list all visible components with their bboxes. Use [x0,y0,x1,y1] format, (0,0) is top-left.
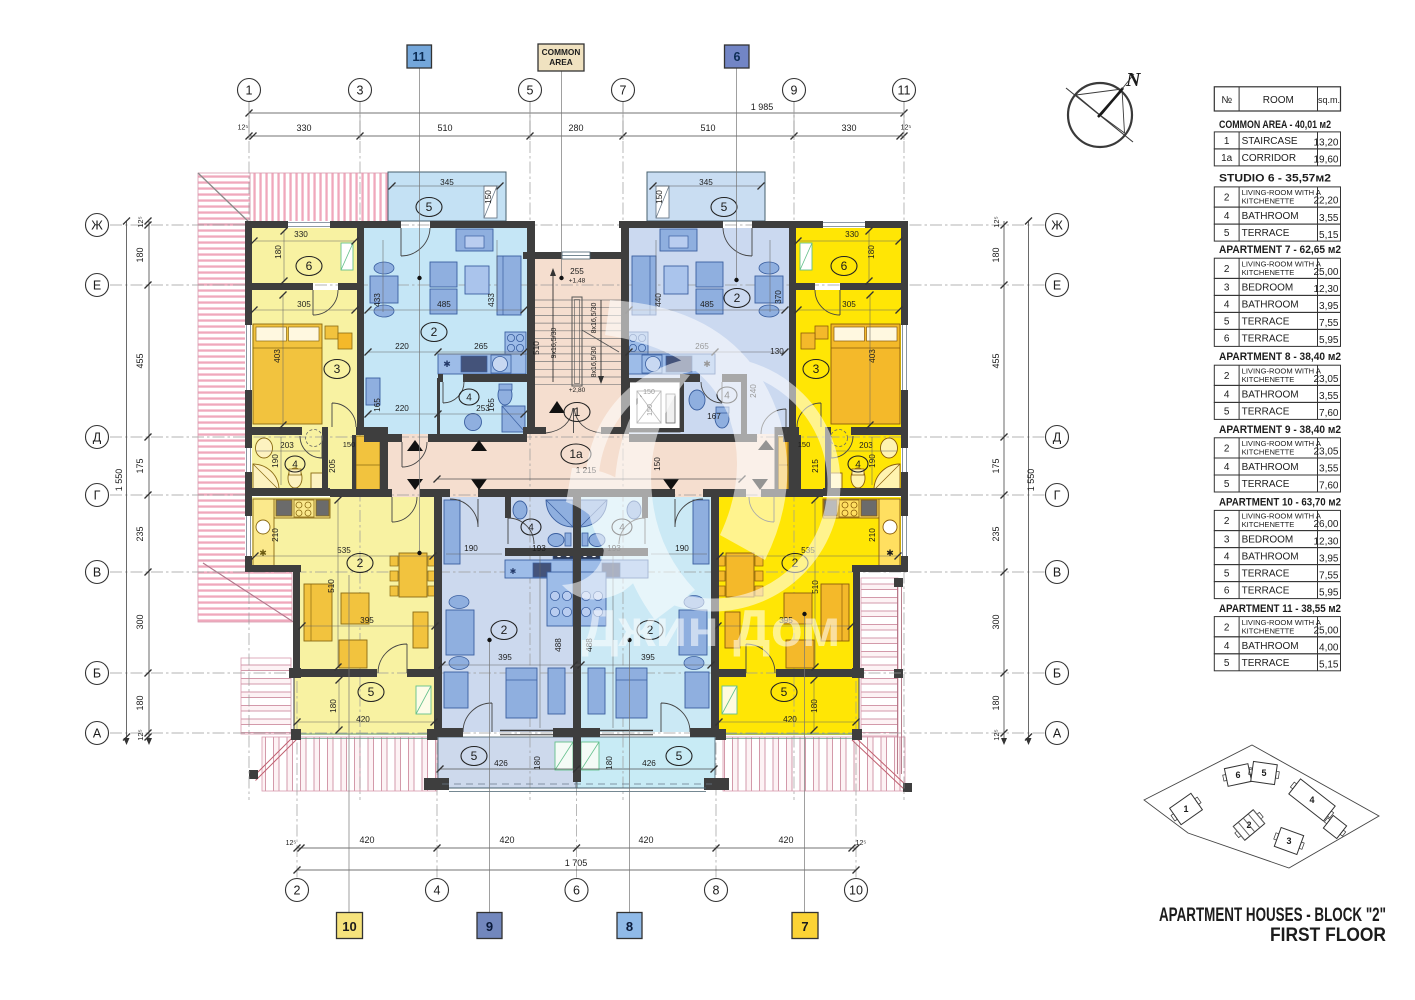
svg-text:535: 535 [337,546,351,555]
svg-text:1: 1 [1183,804,1188,814]
svg-text:4: 4 [855,460,861,471]
svg-text:190: 190 [868,454,877,468]
svg-text:APARTMENT 10 - 63,70 м2: APARTMENT 10 - 63,70 м2 [1219,497,1341,509]
svg-text:Г: Г [1054,489,1061,503]
svg-text:5: 5 [368,685,375,699]
svg-text:2: 2 [501,623,508,637]
svg-text:11: 11 [412,50,425,64]
svg-text:150: 150 [798,440,811,449]
svg-text:BATHROOM: BATHROOM [1242,641,1299,652]
svg-text:12⁵: 12⁵ [901,125,912,132]
svg-text:KITCHENETTE: KITCHENETTE [1242,626,1295,635]
svg-text:510: 510 [700,123,715,133]
svg-text:440: 440 [654,293,663,307]
svg-text:255: 255 [570,267,584,276]
svg-text:12⁵: 12⁵ [856,840,867,847]
svg-text:420: 420 [356,715,370,724]
svg-text:330: 330 [296,123,311,133]
svg-text:5: 5 [1224,228,1230,239]
svg-text:4: 4 [1224,552,1230,563]
svg-text:215: 215 [811,459,820,473]
svg-text:1 550: 1 550 [1026,469,1036,492]
svg-text:5,15: 5,15 [1319,230,1339,241]
svg-text:А: А [1053,727,1062,741]
svg-text:APARTMENT HOUSES - BLOCK "2": APARTMENT HOUSES - BLOCK "2" [1159,905,1386,926]
svg-text:N: N [1125,69,1142,91]
svg-text:5: 5 [676,749,683,763]
svg-text:✱: ✱ [510,567,517,576]
svg-text:220: 220 [395,404,409,413]
svg-text:7: 7 [801,919,808,934]
svg-text:2: 2 [1224,264,1230,275]
svg-text:12⁵: 12⁵ [136,729,145,740]
svg-text:485: 485 [437,300,451,309]
svg-text:150: 150 [343,440,356,449]
svg-text:7,55: 7,55 [1319,318,1339,329]
svg-text:12⁵: 12⁵ [136,216,145,227]
svg-text:+2,80: +2,80 [569,387,586,394]
svg-text:235: 235 [991,526,1001,541]
svg-text:5,95: 5,95 [1319,587,1339,598]
svg-text:2: 2 [1224,516,1230,527]
svg-text:AREA: AREA [549,57,573,67]
svg-text:COMMON AREA - 40,01 м2: COMMON AREA - 40,01 м2 [1219,119,1331,131]
svg-text:175: 175 [991,458,1001,473]
svg-text:165: 165 [373,398,382,412]
svg-text:12,30: 12,30 [1313,284,1338,295]
svg-text:420: 420 [783,715,797,724]
svg-text:2: 2 [1224,371,1230,382]
svg-text:✱: ✱ [443,359,451,369]
svg-text:BATHROOM: BATHROOM [1242,211,1299,222]
svg-text:FIRST FLOOR: FIRST FLOOR [1270,925,1386,946]
svg-text:23,05: 23,05 [1313,447,1338,458]
svg-text:BEDROOM: BEDROOM [1242,283,1294,294]
svg-text:3: 3 [813,362,820,376]
svg-text:4: 4 [1224,211,1230,222]
svg-text:1 550: 1 550 [114,469,124,492]
svg-text:167: 167 [707,412,721,421]
svg-text:STUDIO 6 - 35,57м2: STUDIO 6 - 35,57м2 [1219,172,1331,184]
svg-text:3: 3 [1224,535,1230,546]
svg-text:6: 6 [306,259,313,273]
svg-text:265: 265 [474,342,488,351]
svg-text:TERRACE: TERRACE [1242,334,1290,345]
svg-text:TERRACE: TERRACE [1242,658,1290,669]
svg-text:4: 4 [1224,300,1230,311]
svg-text:330: 330 [841,123,856,133]
svg-text:Е: Е [1053,279,1061,293]
svg-text:165: 165 [487,398,496,412]
svg-text:4: 4 [1224,641,1230,652]
svg-text:А: А [93,727,102,741]
svg-text:485: 485 [700,300,714,309]
svg-text:TERRACE: TERRACE [1242,479,1290,490]
svg-text:5: 5 [1224,658,1230,669]
svg-text:10: 10 [342,919,356,934]
svg-text:6: 6 [1224,334,1230,345]
svg-text:5: 5 [1224,479,1230,490]
svg-text:5: 5 [527,84,534,98]
svg-text:4: 4 [1224,390,1230,401]
svg-text:KITCHENETTE: KITCHENETTE [1242,375,1295,384]
svg-text:3: 3 [334,362,341,376]
svg-text:345: 345 [440,178,454,187]
svg-text:190: 190 [271,454,280,468]
svg-text:5: 5 [1224,407,1230,418]
svg-text:KITCHENETTE: KITCHENETTE [1242,197,1295,206]
svg-text:210: 210 [271,528,280,542]
svg-text:190: 190 [464,544,478,553]
svg-text:150: 150 [653,457,662,471]
svg-text:205: 205 [328,459,337,473]
svg-text:395: 395 [360,616,374,625]
svg-text:3,55: 3,55 [1319,464,1339,475]
svg-text:433: 433 [487,293,496,307]
svg-text:APARTMENT 8 - 38,40 м2: APARTMENT 8 - 38,40 м2 [1219,351,1341,363]
svg-text:5: 5 [1224,317,1230,328]
svg-text:4: 4 [466,393,472,404]
svg-text:190: 190 [675,544,689,553]
svg-text:TERRACE: TERRACE [1242,569,1290,580]
svg-text:180: 180 [135,247,145,262]
svg-text:sq.m.: sq.m. [1318,95,1340,105]
svg-text:1a: 1a [569,447,583,461]
svg-text:150: 150 [655,190,664,204]
svg-text:KITCHENETTE: KITCHENETTE [1242,268,1295,277]
svg-text:12⁵: 12⁵ [992,216,1001,227]
svg-text:KITCHENETTE: KITCHENETTE [1242,448,1295,457]
svg-text:2: 2 [294,884,301,898]
svg-text:9: 9 [791,84,798,98]
svg-text:25,00: 25,00 [1313,625,1338,636]
svg-text:9: 9 [486,919,493,934]
svg-text:8: 8 [626,919,633,934]
svg-text:180: 180 [605,756,614,770]
svg-text:BATHROOM: BATHROOM [1242,300,1299,311]
svg-text:7: 7 [620,84,627,98]
svg-text:5: 5 [781,685,788,699]
svg-text:210: 210 [868,528,877,542]
svg-text:175: 175 [135,458,145,473]
svg-text:BEDROOM: BEDROOM [1242,535,1294,546]
svg-text:4,00: 4,00 [1319,643,1339,654]
svg-text:2: 2 [1224,622,1230,633]
svg-text:510: 510 [437,123,452,133]
svg-text:455: 455 [991,353,1001,368]
svg-text:CORRIDOR: CORRIDOR [1242,153,1296,164]
svg-text:19,60: 19,60 [1313,155,1338,166]
svg-text:В: В [93,566,101,580]
svg-text:180: 180 [135,695,145,710]
svg-text:10: 10 [849,884,863,898]
svg-text:3,95: 3,95 [1319,553,1339,564]
svg-text:3,55: 3,55 [1319,391,1339,402]
svg-text:Б: Б [93,667,101,681]
svg-text:3: 3 [1224,283,1230,294]
svg-text:12⁵: 12⁵ [992,729,1001,740]
svg-text:510: 510 [811,580,820,594]
svg-text:3,55: 3,55 [1319,213,1339,224]
svg-text:305: 305 [297,300,311,309]
svg-text:4: 4 [434,884,441,898]
svg-text:150: 150 [484,190,493,204]
svg-text:180: 180 [991,695,1001,710]
svg-text:6: 6 [841,259,848,273]
svg-text:426: 426 [642,759,656,768]
svg-text:5: 5 [471,749,478,763]
svg-text:5: 5 [721,200,728,214]
svg-text:5: 5 [1224,569,1230,580]
svg-text:6: 6 [1224,586,1230,597]
svg-text:1a: 1a [1221,153,1233,164]
svg-text:BATHROOM: BATHROOM [1242,390,1299,401]
svg-text:Д: Д [1053,431,1062,445]
svg-text:420: 420 [778,835,793,845]
svg-text:193: 193 [532,544,546,553]
svg-text:510: 510 [532,341,541,355]
svg-text:В: В [1053,566,1061,580]
svg-text:2: 2 [357,556,364,570]
svg-text:180: 180 [810,699,819,713]
svg-text:8: 8 [713,884,720,898]
svg-text:TERRACE: TERRACE [1242,407,1290,418]
svg-text:1: 1 [574,405,581,419]
svg-text:KITCHENETTE: KITCHENETTE [1242,520,1295,529]
svg-text:3: 3 [1286,836,1291,846]
svg-text:5,15: 5,15 [1319,660,1339,671]
svg-text:APARTMENT 11 - 38,55 м2: APARTMENT 11 - 38,55 м2 [1219,603,1341,615]
svg-text:Ж: Ж [1051,219,1063,233]
svg-text:395: 395 [498,653,512,662]
svg-text:26,00: 26,00 [1313,519,1338,530]
svg-text:12,30: 12,30 [1313,536,1338,547]
svg-text:370: 370 [774,290,783,304]
svg-text:1 705: 1 705 [565,858,588,868]
svg-text:300: 300 [991,614,1001,629]
svg-text:6: 6 [734,50,741,64]
svg-text:420: 420 [499,835,514,845]
svg-text:330: 330 [294,230,308,239]
svg-text:12⁵: 12⁵ [286,840,297,847]
svg-text:2: 2 [1224,193,1230,204]
svg-text:180: 180 [867,245,876,259]
svg-text:180: 180 [329,699,338,713]
svg-text:22,20: 22,20 [1313,196,1338,207]
svg-text:BATHROOM: BATHROOM [1242,462,1299,473]
svg-text:330: 330 [845,230,859,239]
svg-text:COMMON: COMMON [542,47,581,57]
svg-text:403: 403 [273,349,282,363]
svg-text:TERRACE: TERRACE [1242,228,1290,239]
svg-text:1: 1 [1224,136,1230,147]
svg-text:455: 455 [135,353,145,368]
svg-text:4: 4 [292,460,298,471]
svg-text:Ж: Ж [91,219,103,233]
svg-text:180: 180 [533,756,542,770]
svg-text:235: 235 [135,526,145,541]
svg-text:2: 2 [734,291,741,305]
svg-text:3,95: 3,95 [1319,301,1339,312]
svg-text:APARTMENT 7 - 62,65 м2: APARTMENT 7 - 62,65 м2 [1219,244,1341,256]
svg-text:Г: Г [94,489,101,503]
svg-text:23,05: 23,05 [1313,374,1338,385]
svg-text:4: 4 [1309,795,1314,805]
svg-text:4: 4 [528,523,534,534]
svg-text:✱: ✱ [886,548,894,558]
svg-text:220: 220 [395,342,409,351]
svg-text:2: 2 [1224,444,1230,455]
svg-text:5: 5 [426,200,433,214]
svg-text:APARTMENT 9 - 38,40 м2: APARTMENT 9 - 38,40 м2 [1219,424,1341,436]
svg-text:✱: ✱ [259,548,267,558]
svg-text:510: 510 [327,579,336,593]
svg-text:BATHROOM: BATHROOM [1242,552,1299,563]
svg-text:11: 11 [898,84,911,98]
svg-text:12⁵: 12⁵ [238,125,249,132]
svg-text:345: 345 [699,178,713,187]
svg-text:ROOM: ROOM [1263,95,1294,106]
svg-text:+1,48: +1,48 [569,278,586,285]
svg-text:№: № [1221,95,1232,106]
svg-text:305: 305 [842,300,856,309]
svg-text:TERRACE: TERRACE [1242,317,1290,328]
svg-text:6: 6 [573,884,580,898]
svg-text:Джин Дом: Джин Дом [582,600,841,658]
svg-text:203: 203 [280,441,294,450]
svg-text:2: 2 [431,325,438,339]
svg-text:8x16,5/30: 8x16,5/30 [591,303,598,334]
svg-text:488: 488 [554,638,563,652]
svg-text:3: 3 [357,84,364,98]
svg-text:Е: Е [93,279,101,293]
svg-text:STAIRCASE: STAIRCASE [1242,136,1298,147]
svg-text:1 985: 1 985 [751,102,774,112]
svg-text:203: 203 [859,441,873,450]
svg-text:Б: Б [1053,667,1061,681]
svg-text:180: 180 [274,245,283,259]
svg-text:25,00: 25,00 [1313,267,1338,278]
svg-text:5,95: 5,95 [1319,335,1339,346]
svg-text:TERRACE: TERRACE [1242,586,1290,597]
svg-text:420: 420 [359,835,374,845]
svg-text:7,55: 7,55 [1319,570,1339,581]
svg-text:433: 433 [373,293,382,307]
svg-text:300: 300 [135,614,145,629]
svg-text:180: 180 [991,247,1001,262]
svg-text:1: 1 [246,84,253,98]
svg-text:7,60: 7,60 [1319,408,1339,419]
svg-text:6: 6 [1235,770,1240,780]
svg-text:8x16,5/30: 8x16,5/30 [591,347,598,378]
svg-text:403: 403 [868,349,877,363]
svg-text:13,20: 13,20 [1313,138,1338,149]
svg-text:426: 426 [494,759,508,768]
svg-text:4: 4 [1224,462,1230,473]
svg-text:280: 280 [568,123,583,133]
svg-text:Д: Д [93,431,102,445]
svg-text:7,60: 7,60 [1319,481,1339,492]
svg-text:5: 5 [1261,768,1266,778]
svg-text:9x16,5/30: 9x16,5/30 [551,328,558,359]
svg-text:420: 420 [638,835,653,845]
